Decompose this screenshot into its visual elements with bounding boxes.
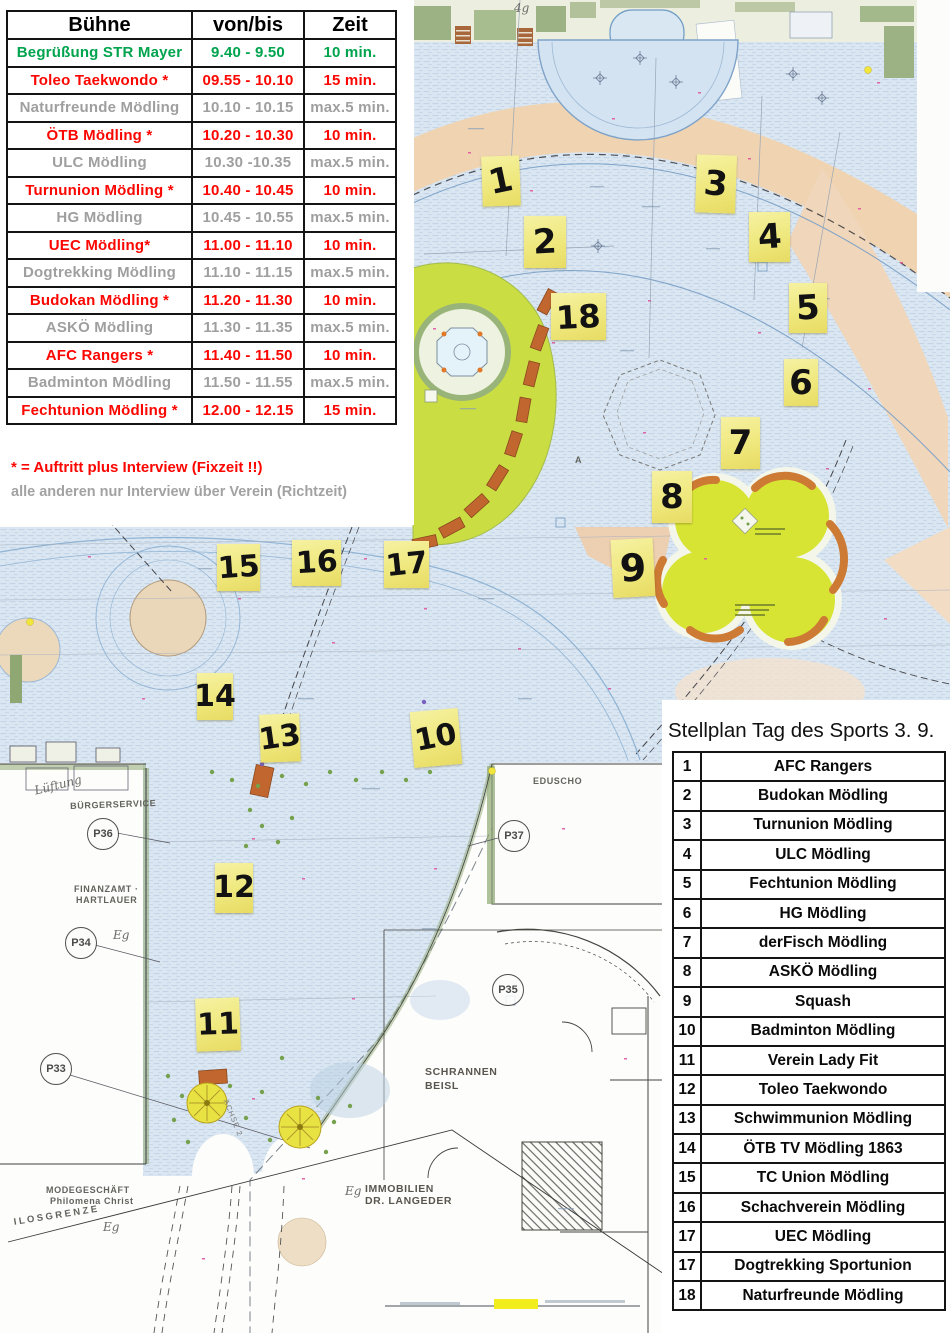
- note-number: 15: [217, 551, 261, 584]
- map-label: 4g: [514, 1, 529, 15]
- stellplan-table: 1 AFC Rangers 2 Budokan Mödling 3 Turnun…: [672, 751, 946, 1311]
- note-number: 5: [795, 290, 820, 325]
- schedule-row: ASKÖ Mödling 11.30 - 11.35 max.5 min.: [7, 314, 396, 342]
- footnote-fixzeit: * = Auftritt plus Interview (Fixzeit !!): [11, 459, 263, 476]
- column-header-buehne: Bühne: [7, 11, 192, 39]
- parking-badge-P36: P36: [87, 818, 119, 850]
- vonbis-cell: 12.00 - 12.15: [192, 397, 304, 425]
- schedule-row: Naturfreunde Mödling 10.10 - 10.15 max.5…: [7, 94, 396, 122]
- stellplan-name-cell: ASKÖ Mödling: [701, 958, 945, 987]
- buehne-cell: AFC Rangers *: [7, 342, 192, 370]
- stellplan-row: 14 ÖTB TV Mödling 1863: [673, 1134, 945, 1163]
- stellplan-row: 12 Toleo Taekwondo: [673, 1075, 945, 1104]
- stellplan-row: 3 Turnunion Mödling: [673, 811, 945, 840]
- note-number: 7: [729, 426, 753, 460]
- stellplan-number-cell: 13: [673, 1105, 701, 1134]
- map-note-13: 13: [259, 713, 301, 762]
- schedule-row: Budokan Mödling * 11.20 - 11.30 10 min.: [7, 287, 396, 315]
- stellplan-row: 10 Badminton Mödling: [673, 1017, 945, 1046]
- stellplan-row: 4 ULC Mödling: [673, 840, 945, 869]
- schedule-row: ULC Mödling 10.30 -10.35 max.5 min.: [7, 149, 396, 177]
- stellplan-name-cell: HG Mödling: [701, 899, 945, 928]
- zeit-cell: max.5 min.: [304, 94, 396, 122]
- buehne-cell: Badminton Mödling: [7, 369, 192, 397]
- vonbis-cell: 11.10 - 11.15: [192, 259, 304, 287]
- stellplan-number-cell: 7: [673, 928, 701, 957]
- vonbis-cell: 11.30 - 11.35: [192, 314, 304, 342]
- stellplan-number-cell: 9: [673, 987, 701, 1016]
- stellplan-number-cell: 17: [673, 1222, 701, 1251]
- map-note-10: 10: [410, 708, 463, 768]
- stellplan-name-cell: Turnunion Mödling: [701, 811, 945, 840]
- map-note-16: 16: [292, 540, 341, 586]
- schedule-row: Badminton Mödling 11.50 - 11.55 max.5 mi…: [7, 369, 396, 397]
- stellplan-number-cell: 16: [673, 1193, 701, 1222]
- note-number: 16: [295, 547, 338, 579]
- note-number: 4: [756, 219, 782, 255]
- zeit-cell: 10 min.: [304, 39, 396, 67]
- map-label: DR. LANGEDER: [365, 1195, 452, 1207]
- parking-badge-P35: P35: [492, 974, 524, 1006]
- note-number: 12: [213, 873, 255, 903]
- buehne-cell: Dogtrekking Mödling: [7, 259, 192, 287]
- note-number: 9: [619, 548, 647, 587]
- schedule-row: AFC Rangers * 11.40 - 11.50 10 min.: [7, 342, 396, 370]
- stellplan-name-cell: Badminton Mödling: [701, 1017, 945, 1046]
- map-note-18: 18: [551, 293, 606, 340]
- map-note-9: 9: [611, 538, 656, 598]
- stellplan-number-cell: 10: [673, 1017, 701, 1046]
- vonbis-cell: 10.45 - 10.55: [192, 204, 304, 232]
- schedule-row: HG Mödling 10.45 - 10.55 max.5 min.: [7, 204, 396, 232]
- zeit-cell: max.5 min.: [304, 369, 396, 397]
- schedule-row: ÖTB Mödling * 10.20 - 10.30 10 min.: [7, 122, 396, 150]
- note-number: 2: [532, 224, 557, 259]
- map-label: HARTLAUER: [76, 895, 137, 905]
- map-label: BEISL: [425, 1080, 459, 1092]
- stellplan-number-cell: 2: [673, 781, 701, 810]
- note-number: 14: [194, 682, 236, 712]
- vonbis-cell: 11.20 - 11.30: [192, 287, 304, 315]
- map-note-5: 5: [789, 283, 827, 333]
- buehne-cell: HG Mödling: [7, 204, 192, 232]
- stellplan-number-cell: 1: [673, 752, 701, 781]
- schedule-row: Dogtrekking Mödling 11.10 - 11.15 max.5 …: [7, 259, 396, 287]
- zeit-cell: 10 min.: [304, 342, 396, 370]
- column-header-zeit: Zeit: [304, 11, 396, 39]
- vonbis-cell: 09.55 - 10.10: [192, 67, 304, 95]
- note-number: 8: [660, 480, 684, 514]
- stellplan-name-cell: Fechtunion Mödling: [701, 870, 945, 899]
- stellplan-name-cell: Schachverein Mödling: [701, 1193, 945, 1222]
- map-label: A: [575, 455, 582, 465]
- stellplan-name-cell: Budokan Mödling: [701, 781, 945, 810]
- stellplan-name-cell: Toleo Taekwondo: [701, 1075, 945, 1104]
- footnote-richtzeit: alle anderen nur Interview über Verein (…: [11, 484, 347, 500]
- stellplan-name-cell: ÖTB TV Mödling 1863: [701, 1134, 945, 1163]
- stellplan-row: 1 AFC Rangers: [673, 752, 945, 781]
- buehne-cell: Budokan Mödling *: [7, 287, 192, 315]
- stellplan-row: 5 Fechtunion Mödling: [673, 870, 945, 899]
- buehne-cell: ASKÖ Mödling: [7, 314, 192, 342]
- map-note-2: 2: [524, 216, 566, 268]
- vonbis-cell: 10.30 -10.35: [192, 149, 304, 177]
- buehne-cell: UEC Mödling*: [7, 232, 192, 260]
- stellplan-row: 9 Squash: [673, 987, 945, 1016]
- stellplan-number-cell: 4: [673, 840, 701, 869]
- map-note-8: 8: [652, 471, 692, 523]
- map-note-1: 1: [481, 155, 521, 206]
- zeit-cell: max.5 min.: [304, 204, 396, 232]
- map-note-4: 4: [749, 212, 790, 262]
- zeit-cell: max.5 min.: [304, 149, 396, 177]
- vonbis-cell: 10.10 - 10.15: [192, 94, 304, 122]
- zeit-cell: 15 min.: [304, 397, 396, 425]
- stellplan-name-cell: AFC Rangers: [701, 752, 945, 781]
- zeit-cell: max.5 min.: [304, 259, 396, 287]
- stellplan-number-cell: 3: [673, 811, 701, 840]
- map-label: SCHRANNEN: [425, 1066, 498, 1078]
- stellplan-number-cell: 5: [673, 870, 701, 899]
- parking-badge-P33: P33: [40, 1053, 72, 1085]
- buehne-cell: Naturfreunde Mödling: [7, 94, 192, 122]
- schedule-table: Bühne von/bis Zeit Begrüßung STR Mayer 9…: [6, 10, 397, 425]
- stellplan-row: 2 Budokan Mödling: [673, 781, 945, 810]
- stellplan-name-cell: Dogtrekking Sportunion: [701, 1252, 945, 1281]
- map-note-6: 6: [784, 359, 818, 406]
- column-header-vonbis: von/bis: [192, 11, 304, 39]
- note-number: 11: [197, 1009, 240, 1040]
- note-number: 18: [555, 299, 601, 333]
- map-label: Eg: [103, 1220, 119, 1234]
- stellplan-number-cell: 11: [673, 1046, 701, 1075]
- buehne-cell: ÖTB Mödling *: [7, 122, 192, 150]
- stellplan-number-cell: 15: [673, 1163, 701, 1192]
- buehne-cell: ULC Mödling: [7, 149, 192, 177]
- note-number: 17: [384, 547, 429, 581]
- buehne-cell: Begrüßung STR Mayer: [7, 39, 192, 67]
- note-number: 1: [486, 162, 516, 200]
- stellplan-row: 7 derFisch Mödling: [673, 928, 945, 957]
- parking-badge-P37: P37: [498, 820, 530, 852]
- stellplan-name-cell: derFisch Mödling: [701, 928, 945, 957]
- stellplan-name-cell: Verein Lady Fit: [701, 1046, 945, 1075]
- note-number: 3: [702, 166, 729, 202]
- map-note-12: 12: [215, 863, 253, 913]
- stellplan-row: 6 HG Mödling: [673, 899, 945, 928]
- stellplan-number-cell: 8: [673, 958, 701, 987]
- zeit-cell: 10 min.: [304, 122, 396, 150]
- schedule-header-row: Bühne von/bis Zeit: [7, 11, 396, 39]
- stellplan-row: 13 Schwimmunion Mödling: [673, 1105, 945, 1134]
- schedule-row: Begrüßung STR Mayer 9.40 - 9.50 10 min.: [7, 39, 396, 67]
- map-note-15: 15: [217, 544, 260, 591]
- buehne-cell: Turnunion Mödling *: [7, 177, 192, 205]
- schedule-row: UEC Mödling* 11.00 - 11.10 10 min.: [7, 232, 396, 260]
- schedule-row: Toleo Taekwondo * 09.55 - 10.10 15 min.: [7, 67, 396, 95]
- zeit-cell: 10 min.: [304, 232, 396, 260]
- stellplan-row: 18 Naturfreunde Mödling: [673, 1281, 945, 1310]
- stellplan-title: Stellplan Tag des Sports 3. 9.: [668, 719, 950, 743]
- stellplan-row: 11 Verein Lady Fit: [673, 1046, 945, 1075]
- zeit-cell: 15 min.: [304, 67, 396, 95]
- vonbis-cell: 11.40 - 11.50: [192, 342, 304, 370]
- vonbis-cell: 11.00 - 11.10: [192, 232, 304, 260]
- map-label: Eg: [345, 1184, 361, 1198]
- stellplan-number-cell: 18: [673, 1281, 701, 1310]
- vonbis-cell: 9.40 - 9.50: [192, 39, 304, 67]
- stellplan-row: 17 Dogtrekking Sportunion: [673, 1252, 945, 1281]
- note-number: 10: [413, 719, 460, 756]
- stellplan-name-cell: Naturfreunde Mödling: [701, 1281, 945, 1310]
- schedule-row: Turnunion Mödling * 10.40 - 10.45 10 min…: [7, 177, 396, 205]
- stellplan-name-cell: ULC Mödling: [701, 840, 945, 869]
- map-label: MODEGESCHÄFT: [46, 1185, 130, 1195]
- buehne-cell: Toleo Taekwondo *: [7, 67, 192, 95]
- stellplan-name-cell: Schwimmunion Mödling: [701, 1105, 945, 1134]
- stellplan-row: 16 Schachverein Mödling: [673, 1193, 945, 1222]
- stellplan-row: 17 UEC Mödling: [673, 1222, 945, 1251]
- stellplan-name-cell: UEC Mödling: [701, 1222, 945, 1251]
- map-label: Eg: [113, 928, 129, 942]
- scanned-document-page: 123456789101112131415161718 LüftungBÜRGE…: [0, 0, 950, 1333]
- map-note-17: 17: [384, 541, 429, 588]
- map-label: IMMOBILIEN: [365, 1183, 434, 1195]
- vonbis-cell: 11.50 - 11.55: [192, 369, 304, 397]
- map-note-11: 11: [195, 997, 241, 1052]
- buehne-cell: Fechtunion Mödling *: [7, 397, 192, 425]
- zeit-cell: max.5 min.: [304, 314, 396, 342]
- stellplan-row: 8 ASKÖ Mödling: [673, 958, 945, 987]
- note-number: 6: [789, 366, 813, 400]
- stellplan-number-cell: 14: [673, 1134, 701, 1163]
- stellplan-name-cell: TC Union Mödling: [701, 1163, 945, 1192]
- schedule-row: Fechtunion Mödling * 12.00 - 12.15 15 mi…: [7, 397, 396, 425]
- map-note-7: 7: [721, 417, 760, 469]
- zeit-cell: 10 min.: [304, 177, 396, 205]
- stellplan-number-cell: 12: [673, 1075, 701, 1104]
- vonbis-cell: 10.20 - 10.30: [192, 122, 304, 150]
- map-note-14: 14: [197, 673, 233, 720]
- map-note-3: 3: [695, 154, 737, 213]
- parking-badge-P34: P34: [65, 927, 97, 959]
- zeit-cell: 10 min.: [304, 287, 396, 315]
- stellplan-number-cell: 6: [673, 899, 701, 928]
- map-label: EDUSCHO: [533, 776, 582, 786]
- stellplan-row: 15 TC Union Mödling: [673, 1163, 945, 1192]
- note-number: 13: [257, 720, 303, 756]
- map-label: FINANZAMT ·: [74, 884, 139, 894]
- stellplan-number-cell: 17: [673, 1252, 701, 1281]
- stellplan-name-cell: Squash: [701, 987, 945, 1016]
- vonbis-cell: 10.40 - 10.45: [192, 177, 304, 205]
